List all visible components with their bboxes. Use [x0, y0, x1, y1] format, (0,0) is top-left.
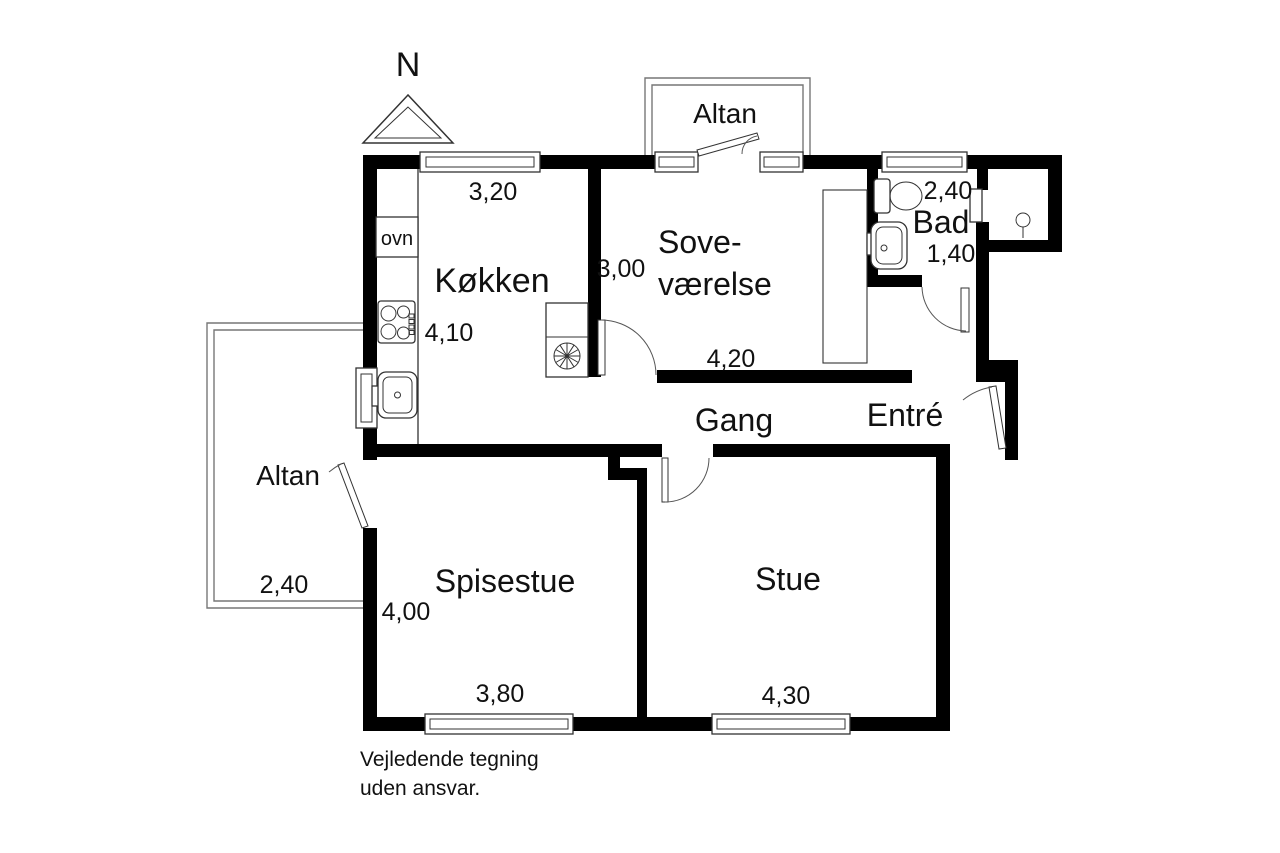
door-bathroom: [922, 287, 969, 332]
window-living-bottom: [712, 714, 850, 734]
wall-segment: [1005, 360, 1018, 460]
floor-plan: N: [0, 0, 1280, 853]
kitchen-sink-icon: [372, 372, 417, 418]
wall-segment: [936, 447, 950, 731]
disclaimer-line1: Vejledende tegning: [360, 748, 539, 771]
room-label-bedroom-2: værelse: [658, 266, 772, 302]
wall-segment: [608, 468, 647, 480]
window-kitchen-top: [420, 152, 540, 172]
window-bedroom-left: [655, 152, 698, 172]
room-label-kitchen: Køkken: [434, 262, 549, 300]
dim-bathroom-mid: 1,40: [927, 240, 976, 268]
balcony-left-label: Altan: [256, 460, 320, 491]
wall-segment: [540, 155, 655, 169]
vent-shaft: [546, 303, 588, 377]
dim-dining-left: 4,00: [382, 598, 431, 626]
room-label-entry: Entré: [867, 397, 943, 433]
wall-segment: [987, 240, 1062, 252]
wall-segment: [657, 370, 912, 383]
room-label-bathroom: Bad: [913, 204, 970, 240]
wall-segment: [850, 717, 950, 731]
wall-segment: [363, 717, 425, 731]
door-balcony-left: [329, 463, 368, 528]
wall-segment: [573, 717, 712, 731]
north-label: N: [396, 46, 421, 84]
door-balcony-top: [697, 133, 759, 156]
wall-segment: [867, 275, 922, 287]
wall-lamp-icon: [1016, 213, 1030, 238]
dim-bedroom-bottom: 4,20: [707, 345, 756, 373]
wall-segment: [363, 528, 377, 731]
window-bathroom-top: [882, 152, 967, 172]
door-bedroom: [598, 320, 656, 375]
wall-segment: [363, 444, 662, 457]
stove-icon: [378, 301, 415, 343]
window-dining-bottom: [425, 714, 573, 734]
room-label-hallway: Gang: [695, 402, 773, 438]
dim-kitchen-inner: 4,10: [425, 319, 474, 347]
north-arrow: N: [363, 46, 453, 143]
dim-kitchen-top: 3,20: [469, 178, 518, 206]
dim-bathroom-top: 2,40: [924, 177, 973, 205]
wall-segment: [713, 444, 950, 457]
dim-bedroom-left: 3,00: [597, 255, 646, 283]
kitchen-fixtures: [372, 169, 588, 444]
window-bedroom-right: [760, 152, 803, 172]
wardrobe: [823, 190, 867, 363]
wall-segment: [1048, 155, 1062, 252]
disclaimer-line2: uden ansvar.: [360, 777, 480, 800]
oven-label: ovn: [381, 228, 413, 250]
wall-segment: [363, 155, 377, 368]
wall-segment: [977, 169, 988, 190]
door-living: [662, 458, 709, 502]
wall-segment: [637, 480, 647, 717]
wall-segment: [803, 155, 882, 169]
door-entry-front: [963, 386, 1006, 449]
dim-dining-bottom: 3,80: [476, 680, 525, 708]
room-label-living: Stue: [755, 561, 821, 597]
wall-segment: [967, 155, 1062, 169]
floor-plan-page: N: [0, 0, 1280, 853]
balcony-top-label: Altan: [693, 98, 757, 129]
dim-balcony-left: 2,40: [260, 571, 309, 599]
room-label-dining: Spisestue: [435, 563, 576, 599]
dim-living-bottom: 4,30: [762, 682, 811, 710]
room-label-bedroom-1: Sove-: [658, 224, 742, 260]
wall-segment: [976, 222, 989, 382]
bathroom-sink-icon: [867, 222, 907, 269]
